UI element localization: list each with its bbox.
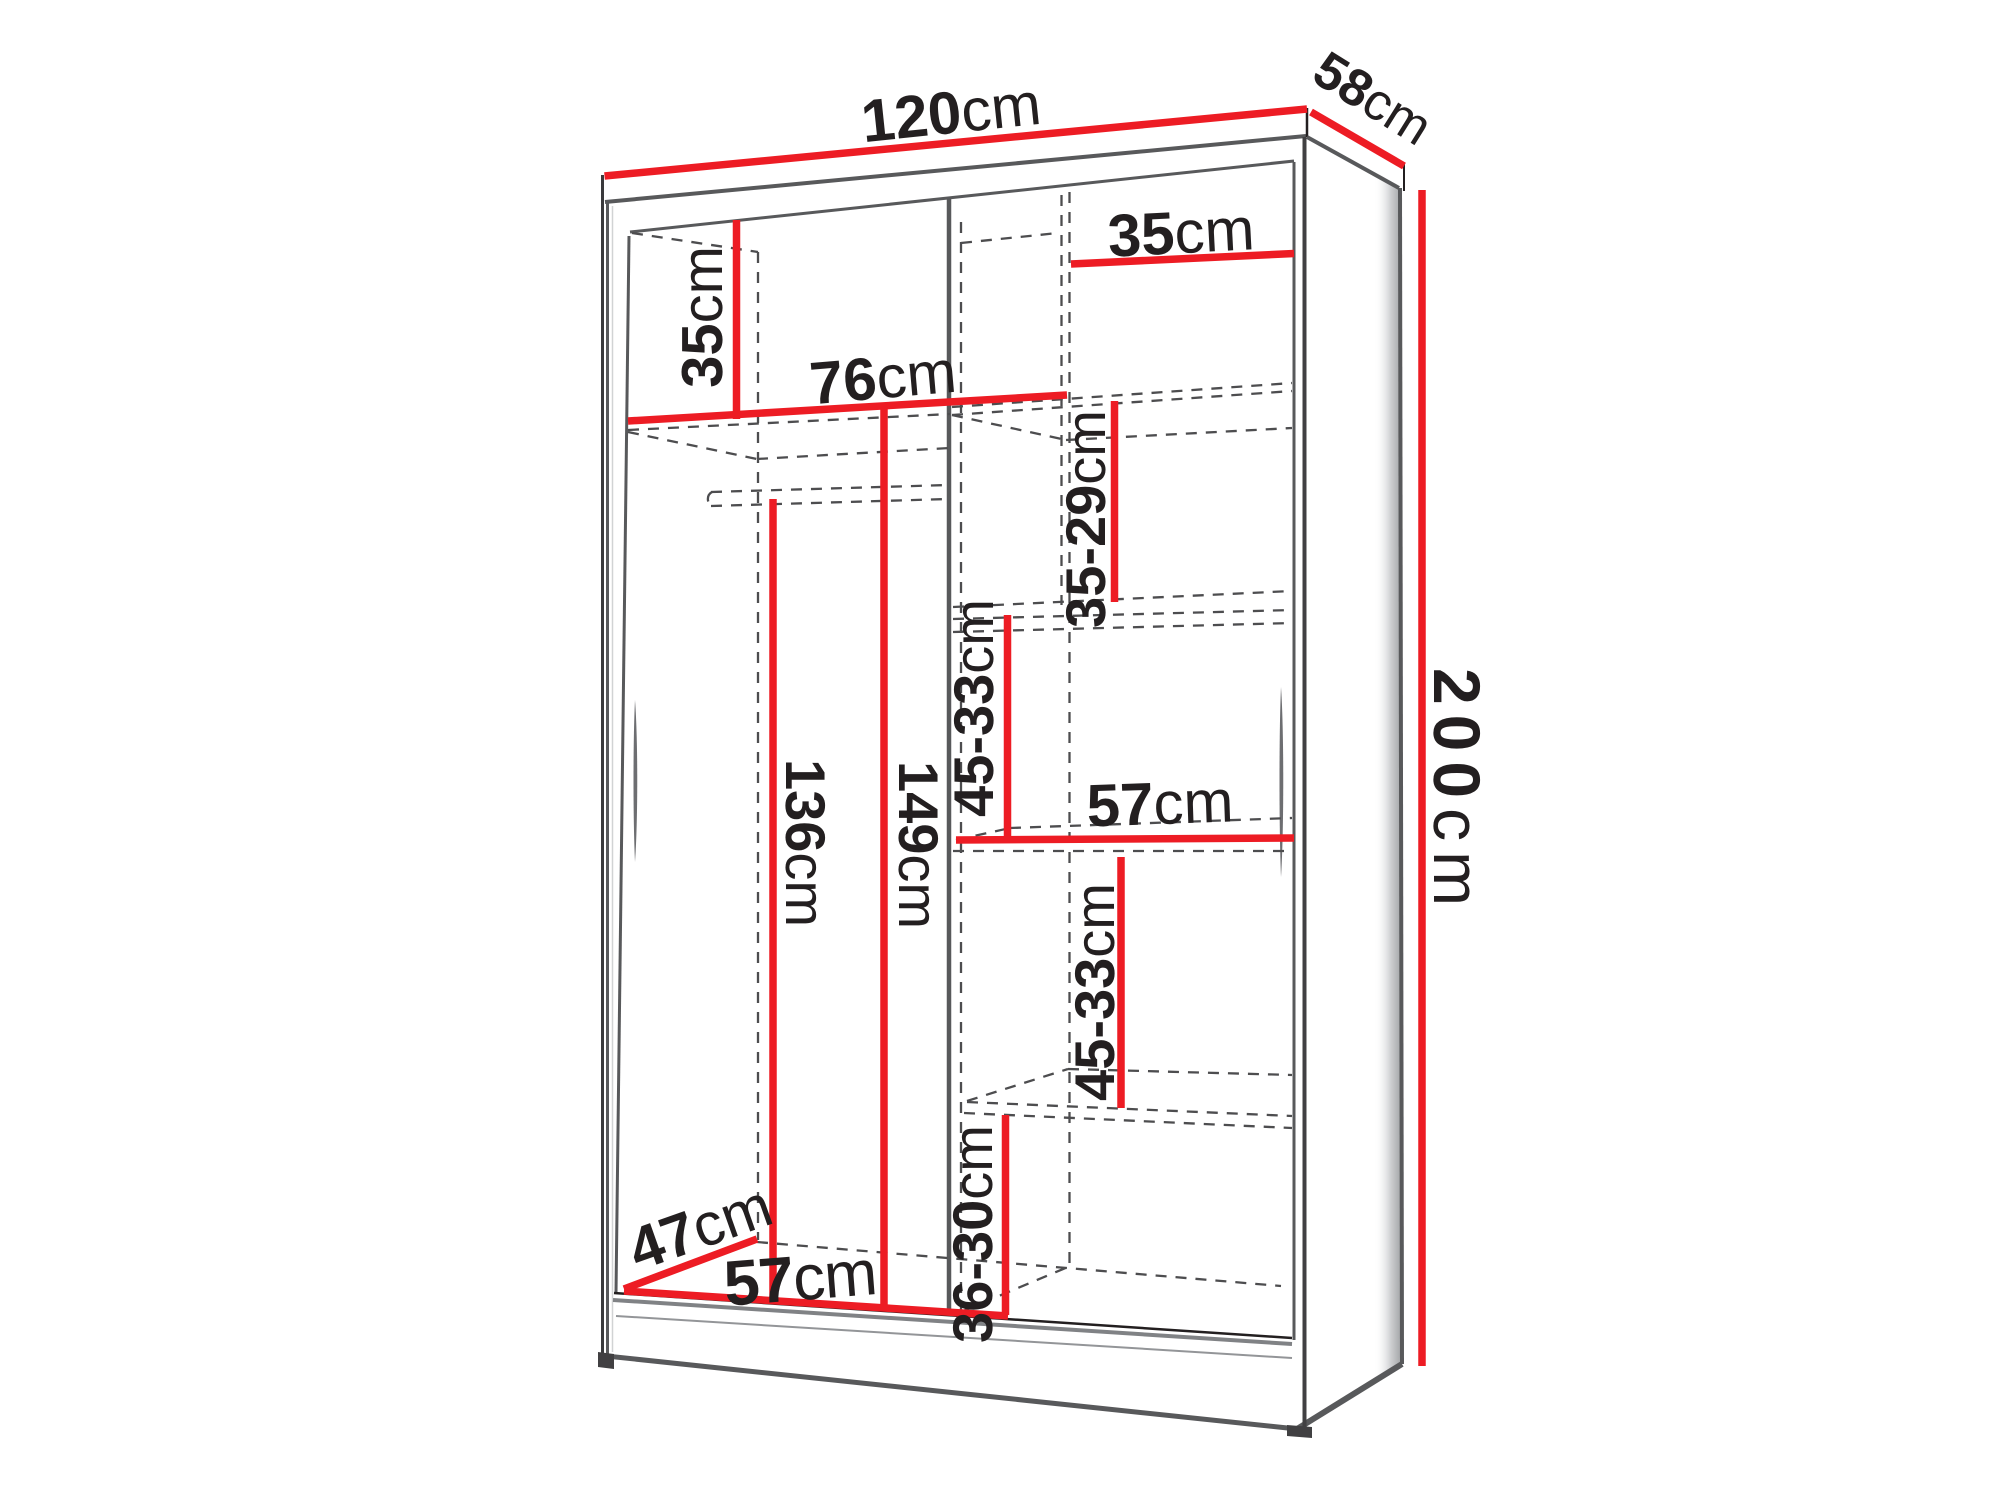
svg-text:35-29cm: 35-29cm: [1054, 410, 1117, 628]
svg-text:45-33cm: 45-33cm: [1063, 883, 1126, 1101]
svg-text:57cm: 57cm: [1086, 767, 1235, 839]
svg-text:76cm: 76cm: [807, 338, 959, 418]
svg-text:36-30cm: 36-30cm: [941, 1125, 1004, 1343]
svg-text:45-33cm: 45-33cm: [942, 599, 1005, 817]
svg-text:57cm: 57cm: [721, 1236, 879, 1320]
svg-text:35cm: 35cm: [670, 246, 735, 388]
svg-text:149cm: 149cm: [887, 761, 950, 929]
svg-text:35cm: 35cm: [1106, 195, 1256, 270]
svg-text:136cm: 136cm: [774, 759, 837, 927]
svg-text:200cm: 200cm: [1420, 668, 1494, 916]
